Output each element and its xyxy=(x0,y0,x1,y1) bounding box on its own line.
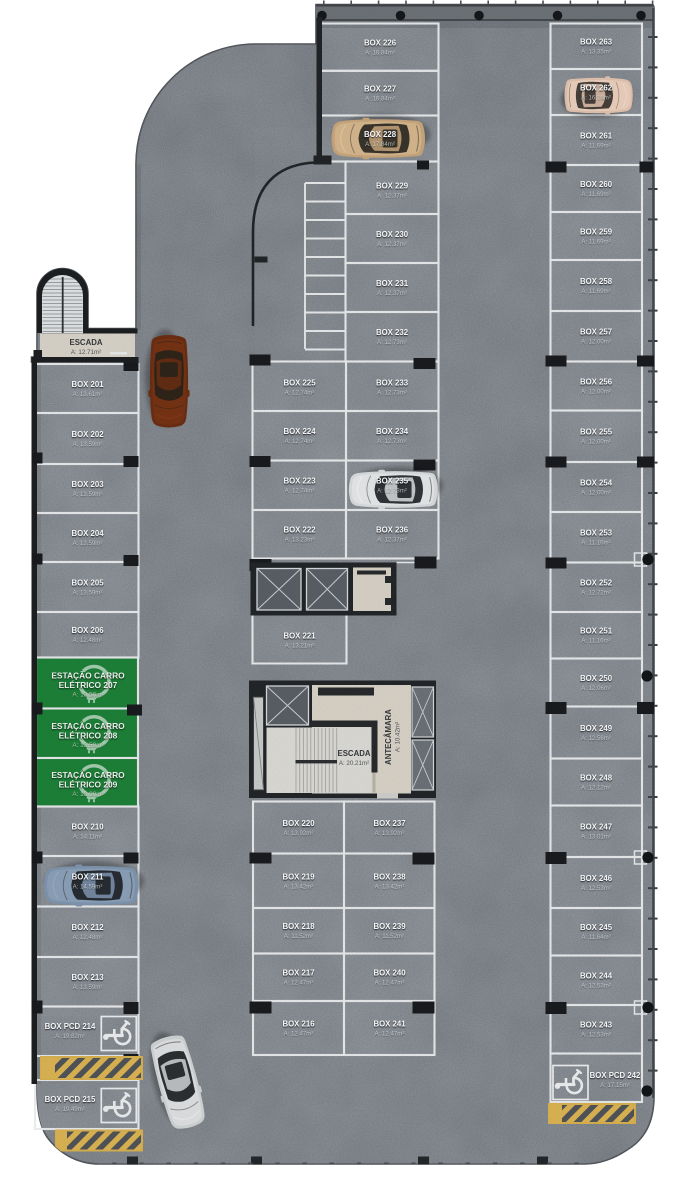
svg-text:A: 12.53m²: A: 12.53m² xyxy=(581,885,611,892)
svg-text:BOX 257: BOX 257 xyxy=(580,328,612,337)
svg-text:BOX 259: BOX 259 xyxy=(580,228,613,237)
svg-text:BOX 201: BOX 201 xyxy=(71,380,104,389)
svg-text:BOX 236: BOX 236 xyxy=(376,526,409,535)
svg-text:A: 12.74m²: A: 12.74m² xyxy=(285,488,315,495)
svg-text:BOX 228: BOX 228 xyxy=(364,130,397,139)
svg-text:BOX 224: BOX 224 xyxy=(283,427,316,436)
svg-text:A: 13.92m²: A: 13.92m² xyxy=(375,830,405,837)
svg-text:A: 13.59m²: A: 13.59m² xyxy=(73,441,103,448)
svg-text:A: 13.92m²: A: 13.92m² xyxy=(284,830,314,837)
svg-text:BOX 258: BOX 258 xyxy=(580,277,613,286)
svg-text:A: 12.37m²: A: 12.37m² xyxy=(377,290,407,297)
svg-text:BOX 213: BOX 213 xyxy=(71,973,104,982)
svg-text:A: 12.48m²: A: 12.48m² xyxy=(73,637,103,644)
svg-text:A: 13.42m²: A: 13.42m² xyxy=(375,884,405,891)
svg-text:BOX 256: BOX 256 xyxy=(580,378,613,387)
svg-text:A: 11.16m²: A: 11.16m² xyxy=(581,638,610,645)
svg-text:BOX 251: BOX 251 xyxy=(580,627,613,636)
svg-text:A: 11.69m²: A: 11.69m² xyxy=(581,191,610,198)
svg-text:A: 11.69m²: A: 11.69m² xyxy=(581,288,610,295)
svg-text:A: 13.35m²: A: 13.35m² xyxy=(581,49,611,56)
svg-text:A: 12.73m²: A: 12.73m² xyxy=(377,390,407,397)
svg-text:A: 12.37m²: A: 12.37m² xyxy=(377,193,407,200)
svg-text:A: 11.69m²: A: 11.69m² xyxy=(581,239,610,246)
svg-text:BOX 216: BOX 216 xyxy=(282,1020,315,1029)
svg-text:A: 12.00m²: A: 12.00m² xyxy=(581,389,611,396)
svg-text:A: 13.42m²: A: 13.42m² xyxy=(284,884,314,891)
svg-text:A: 12.47m²: A: 12.47m² xyxy=(375,980,405,987)
svg-text:BOX 220: BOX 220 xyxy=(282,819,315,828)
svg-text:BOX 218: BOX 218 xyxy=(282,922,315,931)
svg-text:BOX 205: BOX 205 xyxy=(71,579,104,588)
svg-text:A: 17.15m²: A: 17.15m² xyxy=(600,1082,630,1089)
svg-text:BOX 235: BOX 235 xyxy=(376,477,409,486)
svg-text:BOX 248: BOX 248 xyxy=(580,774,613,783)
svg-text:A: 12.00m²: A: 12.00m² xyxy=(581,339,611,346)
svg-text:A: 14.11m²: A: 14.11m² xyxy=(73,834,102,841)
svg-text:BOX 203: BOX 203 xyxy=(71,480,104,489)
svg-text:A: 12.73m²: A: 12.73m² xyxy=(377,339,407,346)
svg-text:BOX 217: BOX 217 xyxy=(282,969,314,978)
svg-text:A: 14.59m²: A: 14.59m² xyxy=(73,884,103,891)
svg-text:BOX 239: BOX 239 xyxy=(373,922,406,931)
svg-text:BOX 221: BOX 221 xyxy=(283,632,316,641)
svg-text:A: 12.37m²: A: 12.37m² xyxy=(377,537,407,544)
svg-text:BOX 238: BOX 238 xyxy=(373,873,406,882)
svg-text:BOX 240: BOX 240 xyxy=(373,969,406,978)
svg-text:A: 12.06m²: A: 12.06m² xyxy=(581,685,611,692)
svg-text:A: 12.74m²: A: 12.74m² xyxy=(285,438,315,445)
svg-text:BOX 219: BOX 219 xyxy=(282,873,315,882)
svg-text:BOX 241: BOX 241 xyxy=(373,1020,406,1029)
svg-text:A: 13.59m²: A: 13.59m² xyxy=(73,984,103,991)
svg-text:BOX 211: BOX 211 xyxy=(72,873,104,882)
svg-text:A: 11.69m²: A: 11.69m² xyxy=(581,143,610,150)
svg-text:A: 16.84m²: A: 16.84m² xyxy=(365,96,395,103)
svg-text:BOX 231: BOX 231 xyxy=(376,279,409,288)
svg-text:A: 12.47m²: A: 12.47m² xyxy=(284,980,314,987)
svg-text:A: 12.48m²: A: 12.48m² xyxy=(73,934,103,941)
svg-text:BOX 246: BOX 246 xyxy=(580,874,613,883)
svg-text:A: 12.00m²: A: 12.00m² xyxy=(581,439,611,446)
svg-text:BOX 227: BOX 227 xyxy=(364,85,396,94)
svg-text:A: 13.23m²: A: 13.23m² xyxy=(285,537,315,544)
svg-text:BOX PCD 215: BOX PCD 215 xyxy=(45,1095,96,1104)
svg-text:A: 12.53m²: A: 12.53m² xyxy=(581,1032,611,1039)
svg-text:BOX 210: BOX 210 xyxy=(71,823,104,832)
svg-text:BOX 253: BOX 253 xyxy=(580,529,613,538)
svg-text:A: 13.61m²: A: 13.61m² xyxy=(73,391,103,398)
svg-text:BOX 254: BOX 254 xyxy=(580,479,613,488)
svg-text:BOX 245: BOX 245 xyxy=(580,923,613,932)
svg-text:BOX PCD 242: BOX PCD 242 xyxy=(590,1071,641,1080)
svg-text:BOX 243: BOX 243 xyxy=(580,1021,613,1030)
svg-text:A: 16.16m²: A: 16.16m² xyxy=(581,95,611,102)
svg-text:A: 12.73m²: A: 12.73m² xyxy=(377,438,407,445)
svg-text:BOX 234: BOX 234 xyxy=(376,427,409,436)
svg-text:A: 13.21m²: A: 13.21m² xyxy=(285,643,315,650)
svg-text:A: 12.47m²: A: 12.47m² xyxy=(284,1031,314,1038)
svg-text:A: 16.84m²: A: 16.84m² xyxy=(365,50,395,57)
svg-text:A: 12.00m²: A: 12.00m² xyxy=(581,490,611,497)
svg-text:A: 12.56m²: A: 12.56m² xyxy=(581,735,611,742)
svg-text:BOX 262: BOX 262 xyxy=(580,84,613,93)
svg-text:A: 11.16m²: A: 11.16m² xyxy=(581,540,610,547)
svg-text:BOX 260: BOX 260 xyxy=(580,180,613,189)
svg-text:A: 12.74m²: A: 12.74m² xyxy=(285,390,315,397)
svg-text:BOX 237: BOX 237 xyxy=(373,819,405,828)
svg-text:BOX 225: BOX 225 xyxy=(283,379,316,388)
svg-text:BOX 250: BOX 250 xyxy=(580,674,613,683)
svg-text:A: 11.64m²: A: 11.64m² xyxy=(581,934,610,941)
svg-text:BOX 255: BOX 255 xyxy=(580,428,613,437)
svg-text:BOX 204: BOX 204 xyxy=(71,529,104,538)
svg-text:BOX 202: BOX 202 xyxy=(71,430,104,439)
svg-text:A: 12.72m²: A: 12.72m² xyxy=(581,590,611,597)
svg-text:BOX 247: BOX 247 xyxy=(580,823,612,832)
svg-text:BOX 249: BOX 249 xyxy=(580,724,613,733)
svg-text:BOX 223: BOX 223 xyxy=(283,477,316,486)
svg-text:BOX 212: BOX 212 xyxy=(71,923,104,932)
svg-text:BOX PCD 214: BOX PCD 214 xyxy=(45,1022,96,1031)
svg-text:BOX 230: BOX 230 xyxy=(376,230,409,239)
svg-text:A: 12.37m²: A: 12.37m² xyxy=(377,241,407,248)
svg-text:A: 11.52m²: A: 11.52m² xyxy=(375,933,404,940)
svg-text:BOX 226: BOX 226 xyxy=(364,39,397,48)
svg-text:BOX 232: BOX 232 xyxy=(376,328,409,337)
svg-text:A: 12.12m²: A: 12.12m² xyxy=(581,785,611,792)
svg-text:BOX 261: BOX 261 xyxy=(580,132,613,141)
svg-text:A: 19.82m²: A: 19.82m² xyxy=(55,1033,85,1040)
svg-text:BOX 244: BOX 244 xyxy=(580,972,613,981)
svg-text:A: 13.59m²: A: 13.59m² xyxy=(73,491,103,498)
svg-text:A: 12.47m²: A: 12.47m² xyxy=(375,1031,405,1038)
svg-text:A: 13.59m²: A: 13.59m² xyxy=(73,590,103,597)
svg-text:A: 12.53m²: A: 12.53m² xyxy=(581,983,611,990)
svg-text:BOX 206: BOX 206 xyxy=(71,626,104,635)
svg-text:BOX 233: BOX 233 xyxy=(376,379,409,388)
svg-text:BOX 222: BOX 222 xyxy=(283,526,316,535)
svg-text:A: 11.52m²: A: 11.52m² xyxy=(284,933,313,940)
svg-text:A: 13.59m²: A: 13.59m² xyxy=(73,540,103,547)
svg-text:A: 13.01m²: A: 13.01m² xyxy=(581,834,611,841)
svg-text:A: 19.49m²: A: 19.49m² xyxy=(55,1106,85,1113)
svg-text:BOX 252: BOX 252 xyxy=(580,579,613,588)
svg-text:BOX 229: BOX 229 xyxy=(376,182,409,191)
svg-text:A: 12.73m²: A: 12.73m² xyxy=(377,488,407,495)
svg-text:BOX 263: BOX 263 xyxy=(580,38,613,47)
svg-text:A: 17.84m²: A: 17.84m² xyxy=(365,141,395,148)
